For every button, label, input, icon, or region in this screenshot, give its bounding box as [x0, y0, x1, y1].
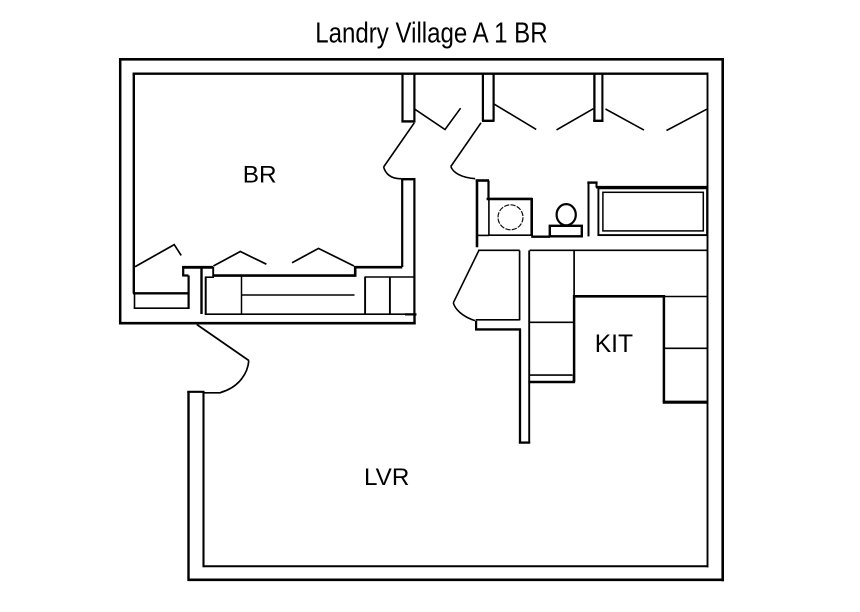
- svg-text:KIT: KIT: [595, 331, 633, 358]
- svg-text:LVR: LVR: [364, 464, 409, 491]
- svg-text:Landry Village A 1 BR: Landry Village A 1 BR: [315, 18, 547, 50]
- svg-text:BR: BR: [243, 162, 277, 189]
